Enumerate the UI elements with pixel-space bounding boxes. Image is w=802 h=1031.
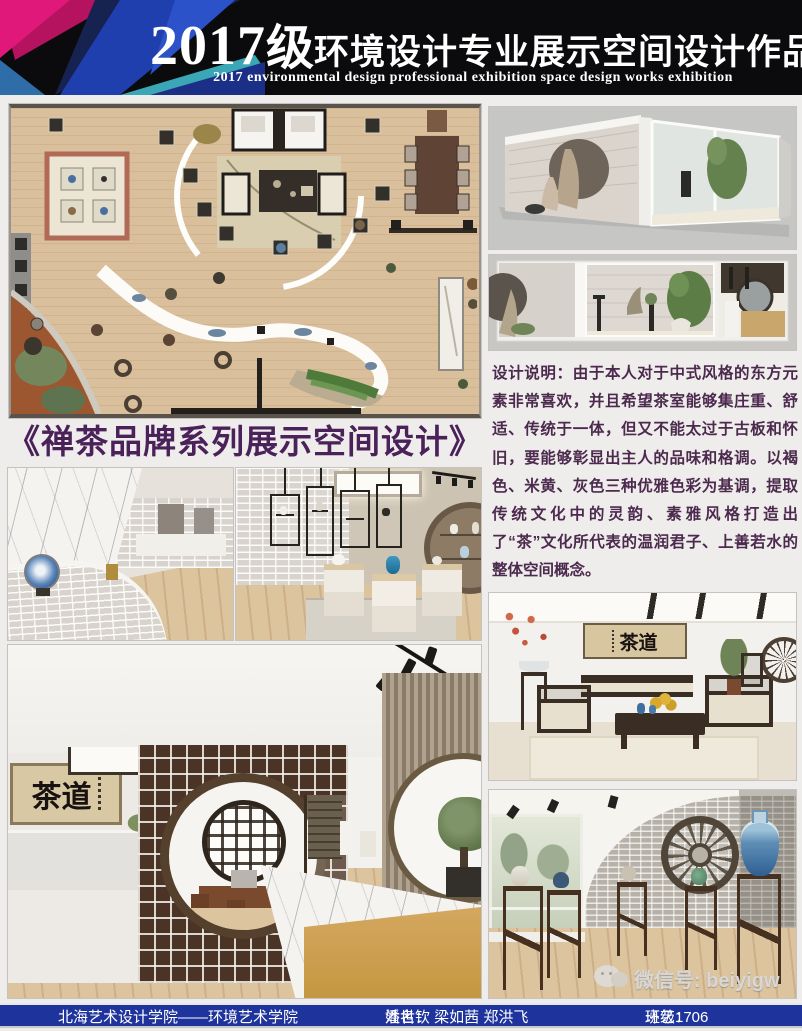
display-pedestal xyxy=(372,574,416,632)
spot-light xyxy=(468,480,473,488)
porcelain-plate xyxy=(24,554,60,590)
header-banner: 2017级环境设计专业展示空间设计作品展 2017 environmental … xyxy=(0,0,802,95)
left-armchair xyxy=(537,699,591,733)
small-vase xyxy=(382,508,390,516)
back-counter xyxy=(136,534,226,556)
pedestal-stand xyxy=(617,882,647,956)
floor-plan-drawing xyxy=(11,108,477,414)
counter-vase xyxy=(340,821,352,855)
hanging-shelf xyxy=(376,484,402,548)
main-title: 2017级环境设计专业展示空间设计作品展 xyxy=(150,8,796,78)
calligraphy-columns xyxy=(98,777,101,811)
render-curved-counter xyxy=(8,468,233,640)
pedestal-stand xyxy=(547,890,581,978)
header-titles: 2017级环境设计专业展示空间设计作品展 2017 environmental … xyxy=(150,0,802,95)
title-chinese: 环境设计专业展示空间设计作品展 xyxy=(314,33,802,72)
description-text: 由于本人对于中式风格的东方元素非常喜欢，并且希望茶室能够集庄重、舒适、传统于一体… xyxy=(492,365,798,579)
spot-light xyxy=(436,476,441,484)
dark-teapot xyxy=(553,872,569,888)
blue-jar xyxy=(386,556,400,574)
shelf-wire xyxy=(354,468,356,490)
class-value: 环艺1706 xyxy=(645,1005,708,1030)
low-partition xyxy=(8,830,140,890)
render-display-shelves xyxy=(236,468,481,640)
title-grade: 级 xyxy=(266,22,314,75)
plate-stand xyxy=(36,588,50,596)
subtitle-english: 2017 environmental design professional e… xyxy=(150,70,796,86)
description-label: 设计说明： xyxy=(492,365,573,382)
render-tea-lounge: 茶道 xyxy=(489,593,796,780)
shelf-board xyxy=(346,518,364,520)
calligraphy-painting: 茶道 xyxy=(583,623,687,659)
display-pedestal xyxy=(422,564,462,616)
plant-vase xyxy=(727,679,741,695)
design-description: 设计说明：由于本人对于中式风格的东方元素非常喜欢，并且希望茶室能够集庄重、舒适、… xyxy=(492,360,798,590)
right-armchair xyxy=(705,691,773,727)
dry-branch-display xyxy=(308,795,342,859)
footer-bar: 北海艺术设计学院——环境艺术学院 姓名：潘世钦 梁如茜 郑洪飞 班级：环艺170… xyxy=(0,1003,802,1028)
white-jar xyxy=(432,556,442,565)
bonsai-pot xyxy=(446,867,481,897)
hanging-shelf xyxy=(306,486,334,556)
celadon-jar xyxy=(511,866,529,886)
small-vase xyxy=(316,502,323,511)
shelf-wire xyxy=(284,468,286,494)
display-niche xyxy=(158,504,184,538)
blue-white-porcelain-vase xyxy=(741,820,779,876)
spot-light xyxy=(452,478,457,486)
monitor xyxy=(231,870,257,888)
calligraphy-text: 茶道 xyxy=(619,628,657,655)
green-jar xyxy=(691,868,707,885)
isometric-drawing xyxy=(489,107,796,249)
bonsai-foliage xyxy=(438,797,481,851)
blue-vase xyxy=(637,703,645,714)
wechat-watermark: 微信号: beiyigw xyxy=(594,956,799,1000)
shelf-wire xyxy=(388,468,390,484)
vase-neck xyxy=(752,810,768,823)
small-vase xyxy=(621,866,636,881)
plant-bowl xyxy=(519,661,549,672)
ceiling-panel-light xyxy=(68,747,148,775)
render-moon-gate-hall: 茶道 xyxy=(8,645,481,998)
hanging-shelf xyxy=(270,494,300,546)
bonsai-trunk xyxy=(460,847,468,869)
blossom-branches xyxy=(497,605,559,663)
small-vase xyxy=(280,506,287,515)
render-elevation-exterior xyxy=(489,255,796,350)
counter-vase-2 xyxy=(360,831,376,857)
side-shelf xyxy=(741,653,763,687)
white-teapot xyxy=(332,554,345,565)
area-rug xyxy=(529,736,759,780)
title-year: 2017 xyxy=(150,15,266,77)
table-leg xyxy=(693,735,699,749)
shelf-wire xyxy=(320,468,322,486)
ceiling-beams xyxy=(639,593,796,619)
pedestal-stand xyxy=(503,886,543,990)
blue-vase xyxy=(649,705,656,714)
display-pedestal xyxy=(324,564,364,616)
floor-plan-figure xyxy=(9,104,481,418)
left-armchair-back xyxy=(537,685,591,699)
names-value: 潘世钦 梁如茜 郑洪飞 xyxy=(385,1005,528,1030)
table-leg xyxy=(621,735,627,749)
footer-school: 北海艺术设计学院——环境艺术学院 xyxy=(58,1005,298,1030)
exhibition-poster: 2017级环境设计专业展示空间设计作品展 2017 environmental … xyxy=(0,0,802,1031)
sofa-backrail xyxy=(581,675,693,683)
calligraphy-columns xyxy=(612,630,614,652)
project-title: 《禅茶品牌系列展示空间设计》 xyxy=(6,419,484,465)
elevation-drawing xyxy=(489,255,796,350)
wechat-icon xyxy=(594,963,628,993)
render-isometric-exterior xyxy=(489,107,796,249)
watermark-text: 微信号: beiyigw xyxy=(634,964,780,993)
small-box-item xyxy=(106,564,118,580)
coffee-table xyxy=(615,713,705,735)
calligraphy-text: 茶道 xyxy=(32,772,92,816)
